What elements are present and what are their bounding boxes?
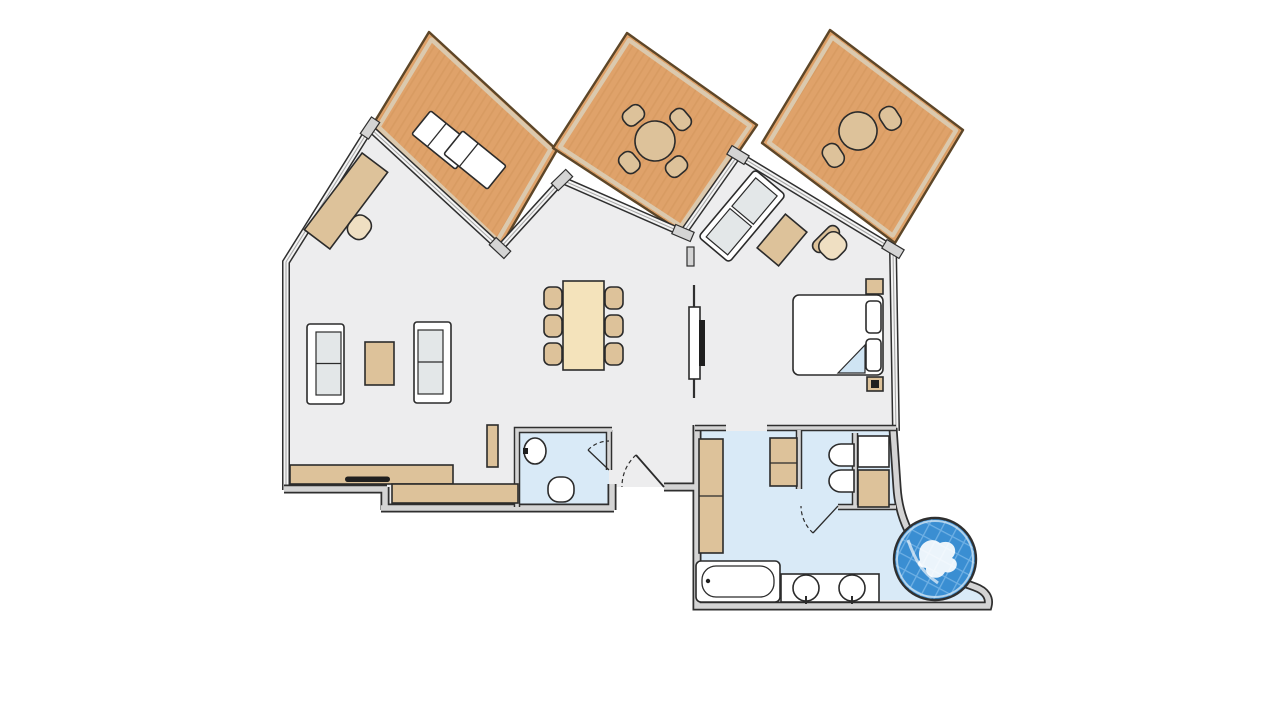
toilet [829, 444, 854, 466]
cabinet [770, 438, 797, 486]
counter-appliance [345, 477, 390, 483]
nightstand [866, 279, 883, 294]
nightstand [867, 377, 883, 391]
shower-tray [858, 436, 889, 467]
floor-plan-svg [0, 0, 1280, 720]
tv-board [689, 307, 700, 379]
dining-chair [544, 287, 562, 309]
tap [523, 448, 528, 454]
double-bed [793, 295, 883, 375]
dining-chair [605, 287, 623, 309]
toilet [548, 477, 574, 502]
wardrobe [699, 439, 723, 553]
coffee-table [365, 342, 394, 385]
floor-plan-page [0, 0, 1280, 720]
stall-cabinet [858, 470, 889, 507]
dining-chair [544, 315, 562, 337]
bathtub [696, 561, 780, 602]
whirlpool-tub [894, 518, 976, 600]
dining-table [563, 281, 604, 370]
bidet [829, 470, 854, 492]
dining-chair [544, 343, 562, 365]
pillow [866, 339, 881, 371]
dining-chair [605, 343, 623, 365]
tall-cabinet [487, 425, 498, 467]
sofa [414, 322, 451, 403]
double-washbasin [781, 574, 879, 604]
bathtub-faucet [706, 579, 710, 583]
wall-stub [687, 247, 694, 266]
dining-chair [605, 315, 623, 337]
pillow [866, 301, 881, 333]
sofa [307, 324, 344, 404]
dining-set [544, 281, 623, 370]
tv [699, 320, 705, 366]
